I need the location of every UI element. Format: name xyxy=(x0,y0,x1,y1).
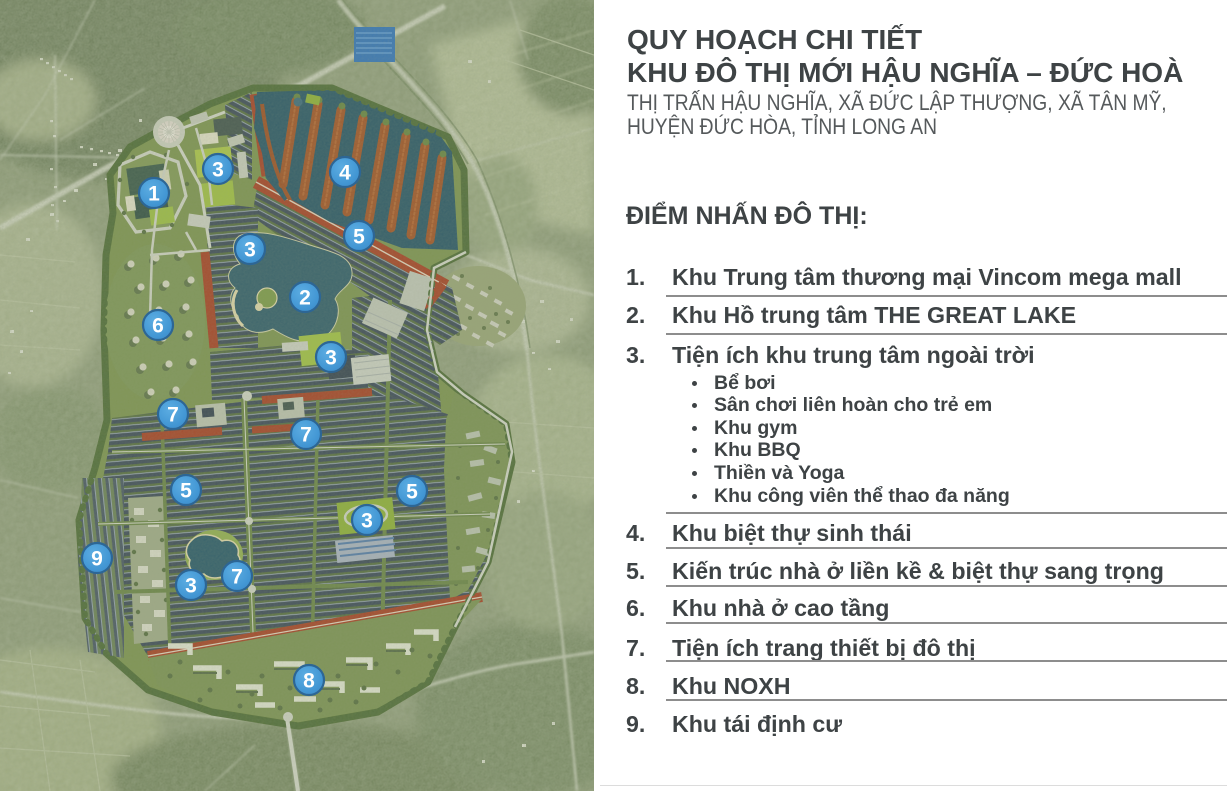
svg-text:5: 5 xyxy=(406,481,418,504)
svg-text:7: 7 xyxy=(167,404,179,427)
svg-text:7: 7 xyxy=(231,566,243,589)
svg-text:8: 8 xyxy=(303,670,315,693)
svg-text:7: 7 xyxy=(300,424,312,447)
svg-text:5: 5 xyxy=(353,226,365,249)
svg-text:6: 6 xyxy=(152,315,164,338)
svg-text:3: 3 xyxy=(185,575,197,598)
svg-text:5: 5 xyxy=(180,480,192,503)
svg-text:2: 2 xyxy=(299,287,311,310)
svg-text:1: 1 xyxy=(148,183,160,206)
svg-text:9: 9 xyxy=(91,548,103,571)
svg-text:3: 3 xyxy=(325,347,337,370)
svg-text:3: 3 xyxy=(244,239,256,262)
svg-text:4: 4 xyxy=(339,162,351,185)
svg-text:3: 3 xyxy=(212,159,224,182)
svg-text:3: 3 xyxy=(361,510,373,533)
